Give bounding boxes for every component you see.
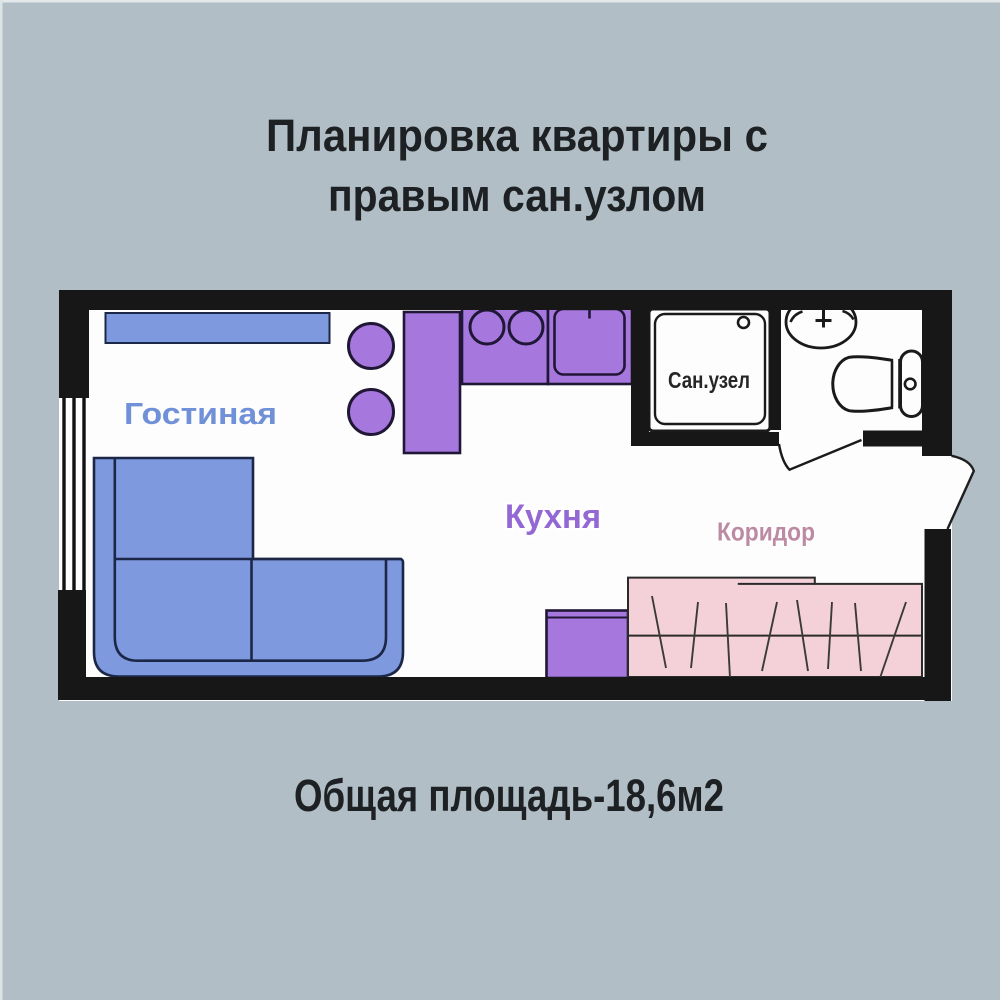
svg-text:правым сан.узлом: правым сан.узлом bbox=[328, 170, 706, 221]
svg-text:Планировка квартиры с: Планировка квартиры с bbox=[266, 110, 768, 161]
svg-text:Общая площадь-18,6м2: Общая площадь-18,6м2 bbox=[294, 770, 724, 821]
svg-text:Гостиная: Гостиная bbox=[124, 396, 277, 431]
svg-text:Коридор: Коридор bbox=[717, 517, 815, 547]
svg-text:Сан.узел: Сан.узел bbox=[668, 367, 750, 393]
svg-text:Кухня: Кухня bbox=[505, 498, 601, 536]
